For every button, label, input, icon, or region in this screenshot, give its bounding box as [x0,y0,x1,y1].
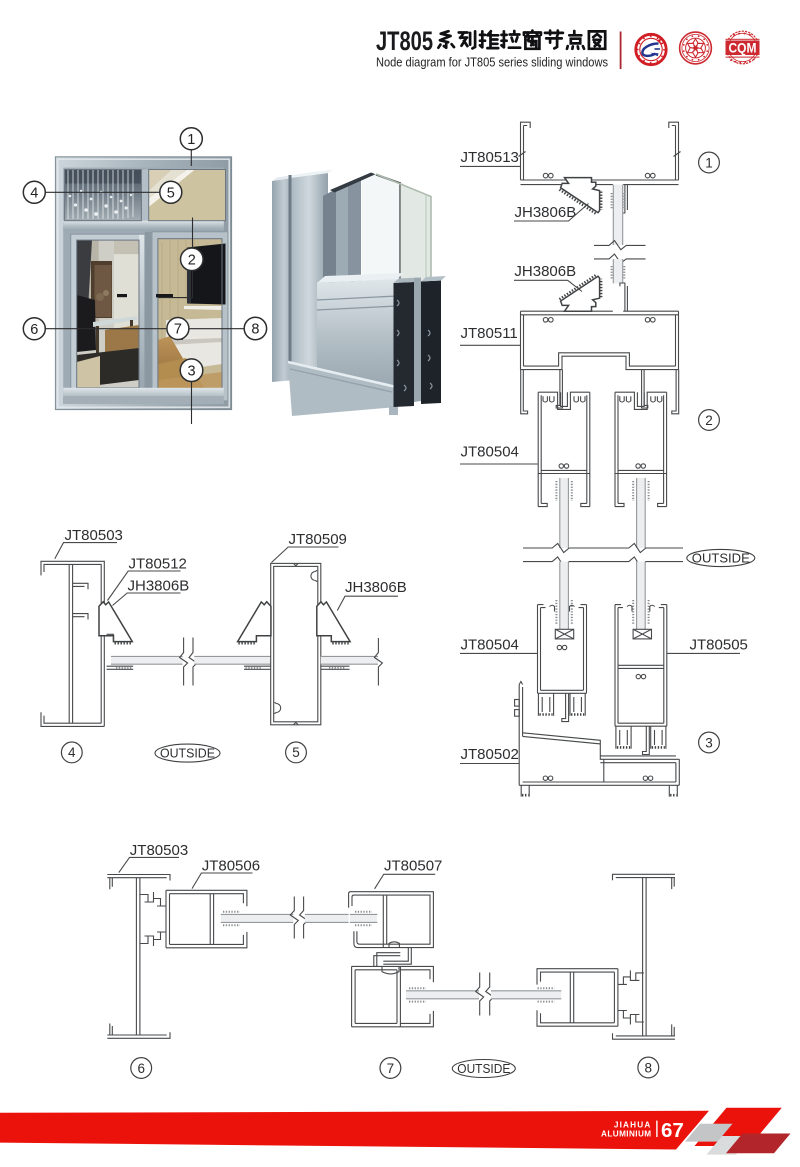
svg-text:2: 2 [705,413,713,428]
svg-text:7: 7 [387,1061,395,1076]
svg-text:3: 3 [705,735,713,750]
svg-text:5: 5 [167,186,175,202]
svg-text:1: 1 [705,155,713,170]
svg-text:OUTSIDE: OUTSIDE [160,746,215,761]
svg-text:JT80503: JT80503 [65,527,123,544]
svg-text:2: 2 [188,253,196,269]
svg-text:JT80511: JT80511 [461,325,518,342]
svg-text:1: 1 [187,132,195,148]
svg-text:7: 7 [174,322,182,338]
svg-text:CQM: CQM [729,41,757,56]
svg-text:Node diagram for JT805 series: Node diagram for JT805 series sliding wi… [376,56,608,70]
svg-text:JT80509: JT80509 [289,531,347,548]
svg-text:3: 3 [187,363,195,379]
svg-text:JT80512: JT80512 [129,555,187,572]
svg-text:JT80507: JT80507 [384,857,442,874]
svg-text:JT80505: JT80505 [690,637,748,654]
svg-text:6: 6 [137,1061,145,1076]
svg-text:ALUMINIUM: ALUMINIUM [601,1130,651,1139]
svg-text:JH3806B: JH3806B [514,263,576,280]
svg-text:JT80503: JT80503 [130,842,188,859]
svg-text:OUTSIDE: OUTSIDE [692,550,750,565]
svg-text:8: 8 [251,322,259,338]
svg-text:67: 67 [661,1119,684,1142]
svg-text:JT80504: JT80504 [461,444,519,461]
svg-text:JT80506: JT80506 [202,857,260,874]
svg-text:5: 5 [292,745,300,760]
svg-text:JT80504: JT80504 [461,637,519,654]
svg-text:4: 4 [30,186,38,202]
svg-text:6: 6 [30,322,38,338]
svg-text:4: 4 [68,745,76,760]
svg-text:8: 8 [645,1060,653,1075]
svg-text:JH3806B: JH3806B [345,579,407,596]
svg-text:JT805: JT805 [376,26,433,56]
svg-text:JT80502: JT80502 [461,746,519,763]
svg-text:OUTSIDE: OUTSIDE [457,1061,510,1076]
svg-text:JH3806B: JH3806B [515,204,577,221]
svg-text:JT80513: JT80513 [461,149,519,166]
svg-text:JIAHUA: JIAHUA [614,1121,652,1130]
svg-text:JH3806B: JH3806B [128,577,190,594]
